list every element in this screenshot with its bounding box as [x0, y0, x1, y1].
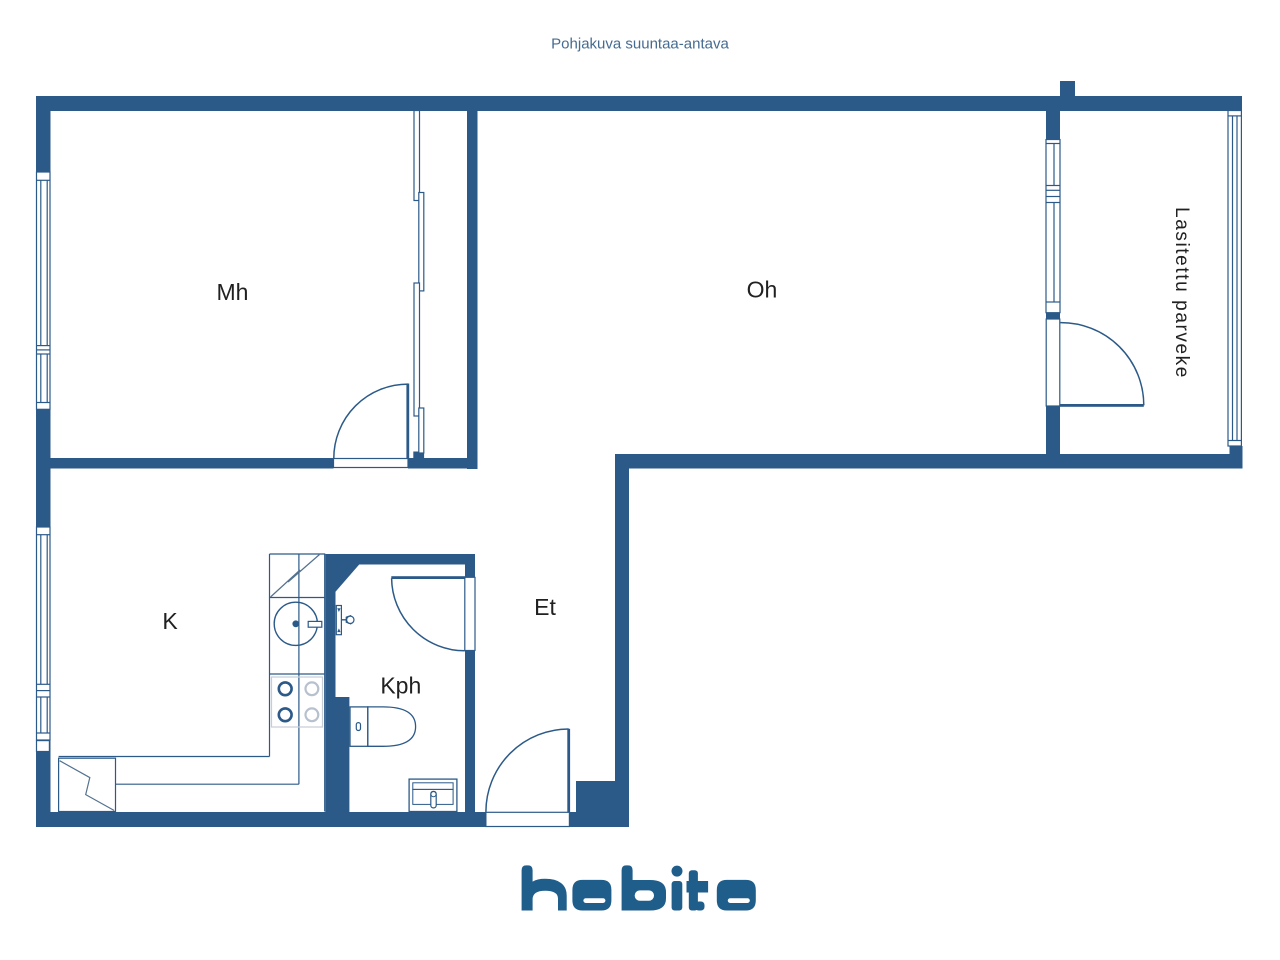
svg-text:Oh: Oh: [747, 277, 778, 303]
svg-text:Pohjakuva suuntaa-antava: Pohjakuva suuntaa-antava: [551, 36, 729, 53]
svg-text:Mh: Mh: [217, 279, 249, 305]
svg-text:Et: Et: [534, 594, 556, 620]
svg-text:Kph: Kph: [380, 673, 421, 699]
svg-text:Lasitettu parveke: Lasitettu parveke: [1171, 207, 1192, 379]
svg-text:K: K: [162, 608, 178, 634]
